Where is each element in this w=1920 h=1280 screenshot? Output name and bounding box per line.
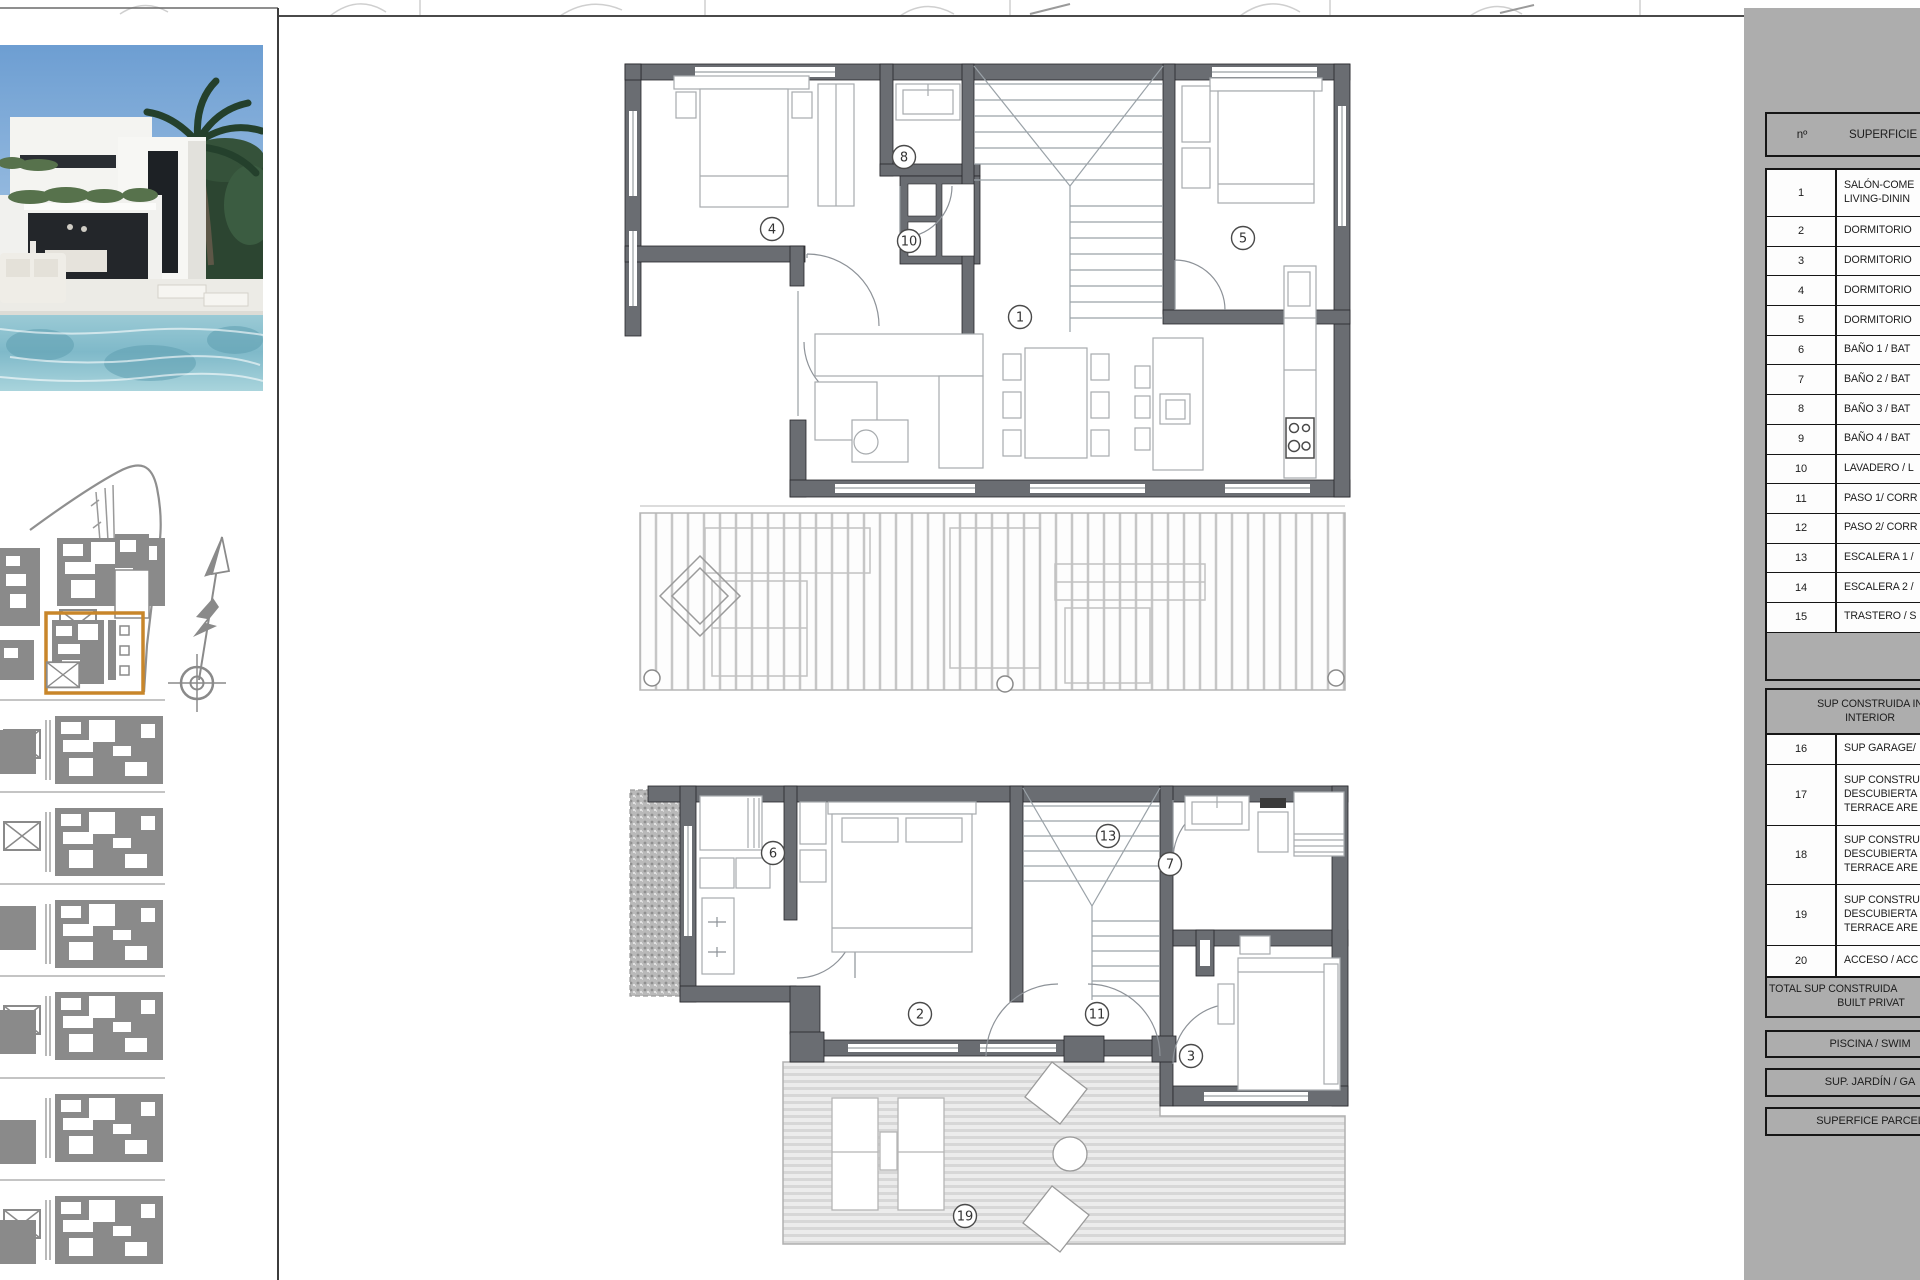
column-header-surface: SUPERFICIE Ú — [1849, 129, 1920, 141]
table-row: 17SUP CONSTRUDESCUBIERTATERRACE ARE — [1767, 765, 1920, 826]
row-description: DORMITORIO — [1837, 247, 1912, 276]
legend-panel: nºSUPERFICIE Ú1SALÓN-COMELIVING-DININ2DO… — [1744, 8, 1920, 1280]
row-description: SUP CONSTRUDESCUBIERTATERRACE ARE — [1837, 765, 1920, 825]
section-header-line: INTERIOR — [1767, 711, 1920, 725]
table-row — [1767, 633, 1920, 679]
row-description-line: SUP CONSTRU — [1844, 834, 1920, 848]
room-number-marker-5: 5 — [1232, 227, 1255, 250]
row-number: 10 — [1767, 455, 1837, 484]
row-description-line: PASO 2/ CORR — [1844, 521, 1917, 535]
row-description: BAÑO 1 / BAT — [1837, 336, 1910, 365]
row-number: 13 — [1767, 544, 1837, 573]
room-number-marker-10: 10 — [898, 230, 921, 253]
table-row: 20ACCESO / ACC — [1767, 946, 1920, 976]
room-number-marker-3: 3 — [1180, 1045, 1203, 1068]
table-row: 8BAÑO 3 / BAT — [1767, 395, 1920, 425]
room-number-marker-7: 7 — [1159, 853, 1182, 876]
table-row: 18SUP CONSTRUDESCUBIERTATERRACE ARE — [1767, 826, 1920, 885]
row-number: 9 — [1767, 425, 1837, 454]
row-number: 4 — [1767, 276, 1837, 305]
table-row: 6BAÑO 1 / BAT — [1767, 336, 1920, 366]
row-number: 20 — [1767, 946, 1837, 976]
table-row: 15TRASTERO / S — [1767, 603, 1920, 633]
furniture — [674, 76, 1322, 478]
table-row: 13ESCALERA 1 / — [1767, 544, 1920, 574]
table-body: 16SUP GARAGE/17SUP CONSTRUDESCUBIERTATER… — [1765, 733, 1920, 978]
svg-text:7: 7 — [1166, 858, 1174, 873]
svg-text:13: 13 — [1100, 830, 1117, 845]
table-row: 12PASO 2/ CORR — [1767, 514, 1920, 544]
row-description-line: BAÑO 4 / BAT — [1844, 432, 1910, 446]
row-number: 18 — [1767, 826, 1837, 884]
row-description-line: BAÑO 3 / BAT — [1844, 403, 1910, 417]
row-number: 3 — [1767, 247, 1837, 276]
windows — [684, 826, 1308, 1101]
section-header-line: SUP CONSTRUIDA IN — [1767, 697, 1920, 711]
table-header-row: nºSUPERFICIE Ú — [1765, 112, 1920, 157]
section-header-built-interior: SUP CONSTRUIDA ININTERIOR — [1765, 688, 1920, 735]
room-number-marker-19: 19 — [954, 1205, 977, 1228]
svg-text:4: 4 — [768, 223, 776, 238]
row-description: SUP CONSTRUDESCUBIERTATERRACE ARE — [1837, 826, 1920, 884]
total-line: BUILT PRIVAT — [1769, 997, 1920, 1011]
row-description-line: DORMITORIO — [1844, 314, 1912, 328]
row-description: SUP CONSTRUDESCUBIERTATERRACE ARE — [1837, 885, 1920, 945]
row-description: SALÓN-COMELIVING-DININ — [1837, 170, 1914, 216]
surface-table: nºSUPERFICIE Ú1SALÓN-COMELIVING-DININ2DO… — [1765, 112, 1920, 1136]
row-description-line: ACCESO / ACC — [1844, 954, 1918, 968]
site-plan — [0, 430, 270, 1280]
row-description-line: TERRACE ARE — [1844, 922, 1920, 936]
row-description: BAÑO 4 / BAT — [1837, 425, 1910, 454]
row-description: TRASTERO / S — [1837, 603, 1916, 632]
row-number: 5 — [1767, 306, 1837, 335]
table-row: 2DORMITORIO — [1767, 217, 1920, 247]
room-number-marker-2: 2 — [909, 1003, 932, 1026]
row-description-line: DESCUBIERTA — [1844, 788, 1920, 802]
footer-jardin-label: SUP. JARDÍN / GA — [1825, 1076, 1916, 1088]
row-description: DORMITORIO — [1837, 217, 1912, 246]
row-description: ACCESO / ACC — [1837, 946, 1918, 976]
table-row: 1SALÓN-COMELIVING-DININ — [1767, 170, 1920, 217]
row-description-line: TERRACE ARE — [1844, 802, 1920, 816]
row-number: 2 — [1767, 217, 1837, 246]
staircase — [974, 66, 1163, 332]
svg-text:19: 19 — [957, 1210, 974, 1225]
table-body: 1SALÓN-COMELIVING-DININ2DORMITORIO3DORMI… — [1765, 168, 1920, 681]
row-description: ESCALERA 1 / — [1837, 544, 1913, 573]
footer-jardin: SUP. JARDÍN / GA — [1765, 1068, 1920, 1097]
footer-parcela-label: SUPERFICE PARCEL — [1816, 1115, 1920, 1127]
row-description-line: DESCUBIERTA — [1844, 848, 1920, 862]
row-description-line: TERRACE ARE — [1844, 862, 1920, 876]
highlighted-plot — [46, 613, 143, 693]
staircase — [1023, 788, 1160, 1000]
room-number-marker-8: 8 — [893, 146, 916, 169]
table-row: 3DORMITORIO — [1767, 247, 1920, 277]
row-description: BAÑO 3 / BAT — [1837, 395, 1910, 424]
outdoor-sofa — [0, 253, 66, 303]
row-description-line: TRASTERO / S — [1844, 610, 1916, 624]
table-row: 4DORMITORIO — [1767, 276, 1920, 306]
plan-sheet: 481051 — [0, 0, 1920, 1280]
row-description: PASO 1/ CORR — [1837, 484, 1917, 513]
row-description: BAÑO 2 / BAT — [1837, 365, 1910, 394]
row-description-line: DORMITORIO — [1844, 284, 1912, 298]
roof-deck — [640, 513, 1345, 692]
row-description: DORMITORIO — [1837, 276, 1912, 305]
svg-text:11: 11 — [1089, 1008, 1106, 1023]
row-description-line: LIVING-DININ — [1844, 193, 1914, 207]
row-number: 11 — [1767, 484, 1837, 513]
vertical-divider-line — [277, 8, 279, 1280]
row-number: 14 — [1767, 573, 1837, 602]
table-row: 5DORMITORIO — [1767, 306, 1920, 336]
louver-strip — [630, 790, 680, 996]
row-description: LAVADERO / L — [1837, 455, 1914, 484]
row-description: DORMITORIO — [1837, 306, 1912, 335]
footer-piscina: PISCINA / SWIM — [1765, 1030, 1920, 1058]
cooktop — [1286, 418, 1314, 458]
room-number-marker-4: 4 — [761, 218, 784, 241]
svg-text:5: 5 — [1239, 232, 1247, 247]
room-number-marker-6: 6 — [762, 842, 785, 865]
villa-photo — [0, 45, 263, 391]
table-row: 10LAVADERO / L — [1767, 455, 1920, 485]
table-row: 14ESCALERA 2 / — [1767, 573, 1920, 603]
table-row: 7BAÑO 2 / BAT — [1767, 365, 1920, 395]
row-number: 1 — [1767, 170, 1837, 216]
row-number: 16 — [1767, 735, 1837, 764]
row-description-line: SUP CONSTRU — [1844, 894, 1920, 908]
row-number: 7 — [1767, 365, 1837, 394]
svg-text:8: 8 — [900, 151, 908, 166]
table-row: 19SUP CONSTRUDESCUBIERTATERRACE ARE — [1767, 885, 1920, 946]
row-description-line: SUP CONSTRU — [1844, 774, 1920, 788]
svg-text:10: 10 — [901, 235, 918, 250]
row-description-line: SUP GARAGE/ — [1844, 742, 1916, 756]
row-description: SUP GARAGE/ — [1837, 735, 1916, 764]
row-description-line: BAÑO 2 / BAT — [1844, 373, 1910, 387]
row-description-line: ESCALERA 1 / — [1844, 551, 1913, 565]
row-description-line: ESCALERA 2 / — [1844, 581, 1913, 595]
room-number-marker-13: 13 — [1097, 825, 1120, 848]
row-description-line: DORMITORIO — [1844, 254, 1912, 268]
table-row: 11PASO 1/ CORR — [1767, 484, 1920, 514]
row-description: ESCALERA 2 / — [1837, 573, 1913, 602]
table-row: 16SUP GARAGE/ — [1767, 735, 1920, 765]
row-number: 12 — [1767, 514, 1837, 543]
row-description-line: DESCUBIERTA — [1844, 908, 1920, 922]
total-line: TOTAL SUP CONSTRUIDA — [1769, 983, 1920, 997]
total-built-row: TOTAL SUP CONSTRUIDABUILT PRIVAT — [1765, 978, 1920, 1018]
room-number-marker-1: 1 — [1009, 306, 1032, 329]
row-description-line: PASO 1/ CORR — [1844, 492, 1917, 506]
row-description-line: LAVADERO / L — [1844, 462, 1914, 476]
room-number-marker-11: 11 — [1086, 1003, 1109, 1026]
row-number: 8 — [1767, 395, 1837, 424]
svg-text:2: 2 — [916, 1008, 924, 1023]
row-description: PASO 2/ CORR — [1837, 514, 1917, 543]
svg-text:1: 1 — [1016, 311, 1024, 326]
row-number: 17 — [1767, 765, 1837, 825]
row-number: 15 — [1767, 603, 1837, 632]
floor-plan-upper: 481051 — [600, 36, 1360, 716]
column-header-number: nº — [1767, 129, 1837, 141]
top-strip-fragments — [0, 0, 1920, 17]
row-description-line: DORMITORIO — [1844, 224, 1912, 238]
footer-parcela: SUPERFICE PARCEL — [1765, 1107, 1920, 1136]
footer-piscina-label: PISCINA / SWIM — [1829, 1038, 1910, 1050]
row-number: 6 — [1767, 336, 1837, 365]
row-number: 19 — [1767, 885, 1837, 945]
svg-text:3: 3 — [1187, 1050, 1195, 1065]
table-row: 9BAÑO 4 / BAT — [1767, 425, 1920, 455]
floor-plan-lower: 6137211319 — [600, 756, 1360, 1276]
row-description-line: SALÓN-COME — [1844, 179, 1914, 193]
north-arrow-compass — [168, 537, 229, 712]
svg-text:6: 6 — [769, 847, 777, 862]
row-description-line: BAÑO 1 / BAT — [1844, 343, 1910, 357]
